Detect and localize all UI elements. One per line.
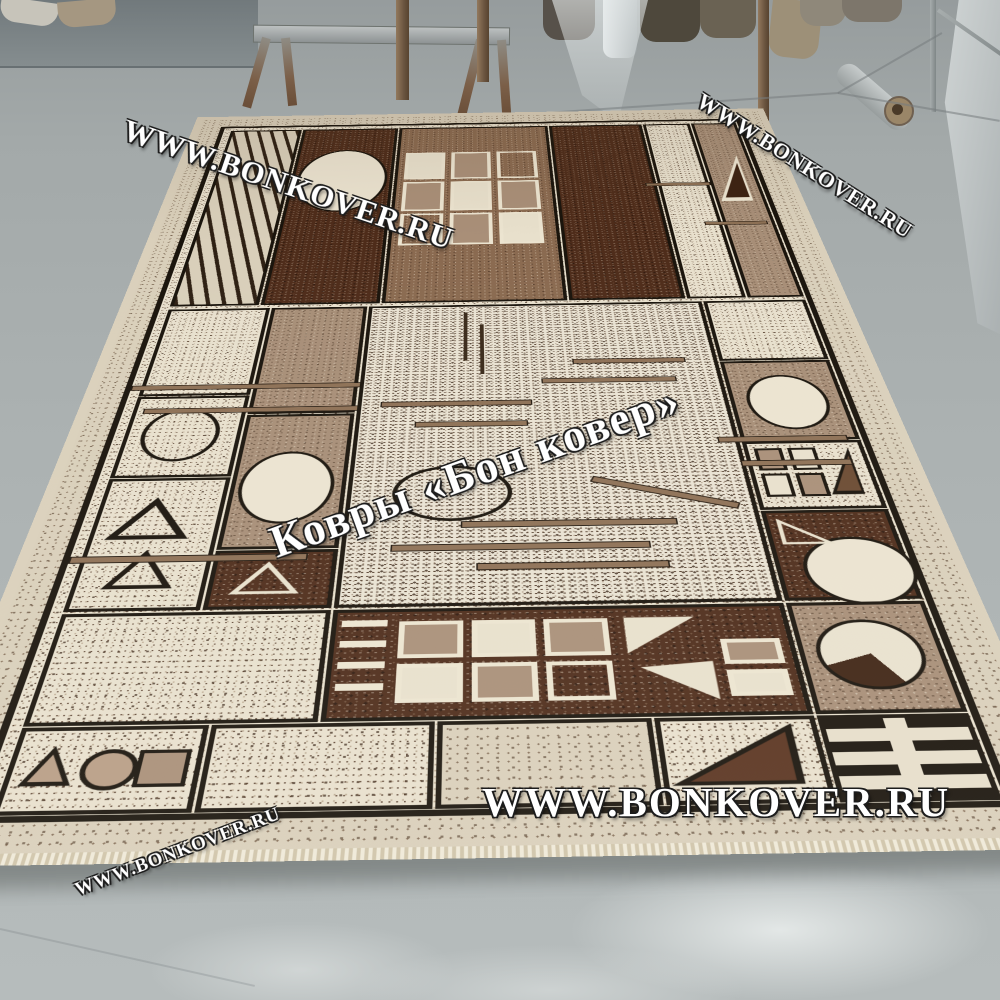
bars-motif (414, 420, 528, 427)
triangle-outline-icon (17, 746, 82, 788)
rug-cell-quarter-circle (786, 601, 968, 715)
bars-motif (645, 182, 711, 186)
carpet-roll (842, 0, 902, 22)
bars-motif (390, 541, 651, 552)
rusty-post (396, 0, 409, 100)
carpet-roll (640, 0, 700, 42)
rug-cell-cream (194, 721, 435, 812)
carpet-roll (800, 0, 846, 26)
rug-cell-cream (23, 610, 331, 727)
floor-pipe-hole (892, 104, 903, 115)
watermark-bottom: WWW.BONKOVER.RU (482, 778, 950, 826)
rug-cell-tan-circle (720, 360, 861, 441)
metal-rack-post (930, 0, 936, 112)
line-motif (463, 312, 467, 360)
triangle-outline-icon (227, 561, 305, 596)
window-grid-motif (394, 618, 616, 703)
rug-cell-window-dark (320, 603, 813, 722)
metal-stand-bar (253, 25, 510, 46)
bars-motif (704, 221, 768, 225)
carpet-roll (700, 0, 756, 38)
triangle-outline-icon (103, 497, 199, 542)
flag-triangle-icon (619, 615, 701, 654)
line-motif (480, 324, 485, 374)
rug-cell-dark-ellipse (761, 509, 924, 601)
triangle-outline-icon (773, 518, 835, 546)
bars-motif (572, 357, 686, 364)
flag-triangle-icon (707, 155, 756, 203)
rug-cell-cream (703, 300, 828, 361)
window-grid-motif (720, 638, 794, 696)
quarter-circle-motif (807, 619, 938, 691)
flag-triangle-icon (639, 659, 725, 701)
bars-motif (461, 518, 678, 528)
rug-cell-grid-triangle (742, 440, 888, 510)
bars-motif (380, 400, 532, 408)
bars-motif (476, 560, 670, 570)
square-glyph (131, 749, 192, 787)
rug-cell-glyphs (0, 725, 209, 816)
circle-motif (794, 536, 930, 606)
circle-motif (739, 374, 839, 430)
circle-outline-motif (132, 408, 225, 462)
rusty-post (477, 0, 489, 82)
bars-motif (590, 476, 740, 509)
comb-motif (333, 620, 388, 705)
photo-scene: WWW.BONKOVER.RU WWW.BONKOVER.RU Ковры «Б… (0, 0, 1000, 1000)
